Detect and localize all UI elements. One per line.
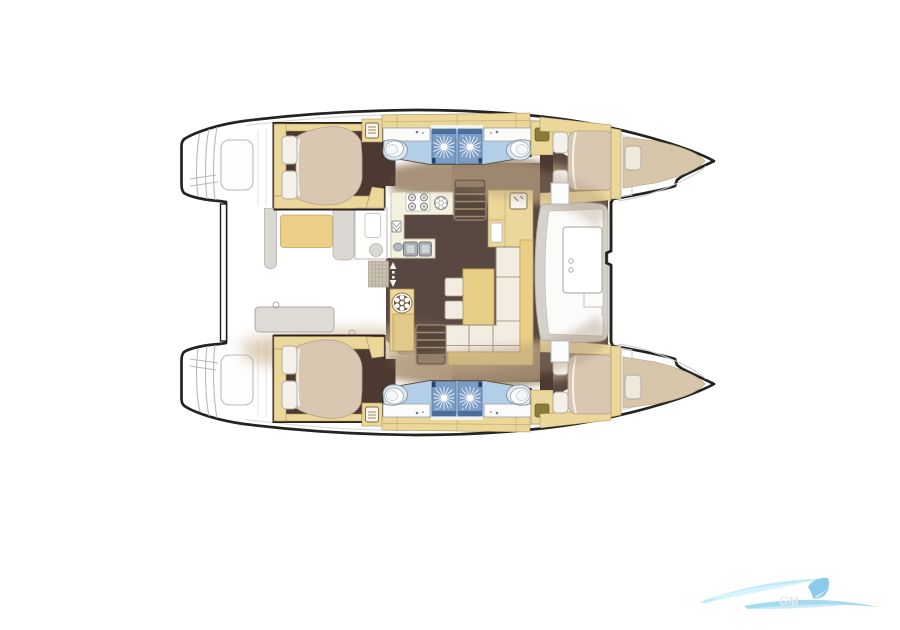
svg-text:GM: GM [779,594,799,608]
